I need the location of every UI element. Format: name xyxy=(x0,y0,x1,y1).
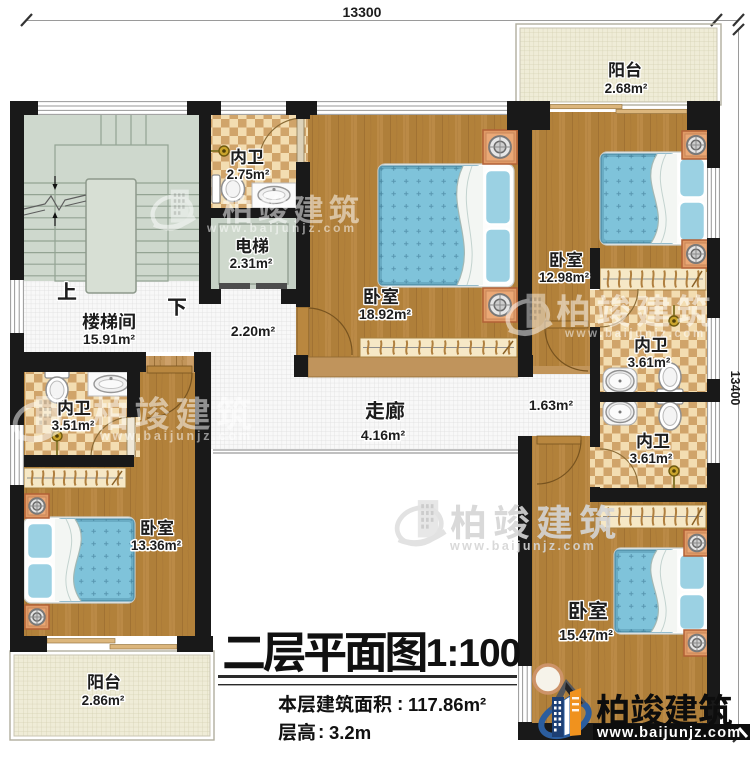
svg-text:3.2m: 3.2m xyxy=(329,722,371,743)
svg-text::: : xyxy=(318,722,324,743)
svg-text:2.31m²: 2.31m² xyxy=(230,256,273,271)
svg-text:18.92m²: 18.92m² xyxy=(359,306,411,322)
svg-text:www.baijunjz.com: www.baijunjz.com xyxy=(596,725,741,741)
svg-text:www.baijunjz.com: www.baijunjz.com xyxy=(99,429,253,443)
svg-text:2.86m²: 2.86m² xyxy=(82,693,125,708)
svg-text:www.baijunjz.com: www.baijunjz.com xyxy=(206,221,357,235)
svg-text:3.61m²: 3.61m² xyxy=(628,355,671,370)
svg-text:12.98m²: 12.98m² xyxy=(539,270,590,285)
svg-text:www.baijunjz.com: www.baijunjz.com xyxy=(564,328,706,340)
svg-text:1.63m²: 1.63m² xyxy=(529,397,574,413)
svg-text:2.68m²: 2.68m² xyxy=(605,81,648,96)
svg-text:3.51m²: 3.51m² xyxy=(52,418,95,433)
svg-text:13300: 13300 xyxy=(343,4,382,20)
svg-text:2.75m²: 2.75m² xyxy=(227,167,270,182)
svg-text:15.91m²: 15.91m² xyxy=(83,331,135,347)
svg-text:13.36m²: 13.36m² xyxy=(131,538,182,553)
svg-text:4.16m²: 4.16m² xyxy=(361,427,406,443)
svg-text:1:100: 1:100 xyxy=(426,632,521,675)
svg-text:15.47m²: 15.47m² xyxy=(559,628,613,644)
svg-text:www.baijunjz.com: www.baijunjz.com xyxy=(449,539,596,553)
svg-text:2.20m²: 2.20m² xyxy=(231,323,276,339)
svg-text::: : xyxy=(397,694,403,715)
svg-text:13400: 13400 xyxy=(728,371,742,406)
svg-text:3.61m²: 3.61m² xyxy=(630,451,673,466)
svg-text:117.86m²: 117.86m² xyxy=(408,694,486,715)
